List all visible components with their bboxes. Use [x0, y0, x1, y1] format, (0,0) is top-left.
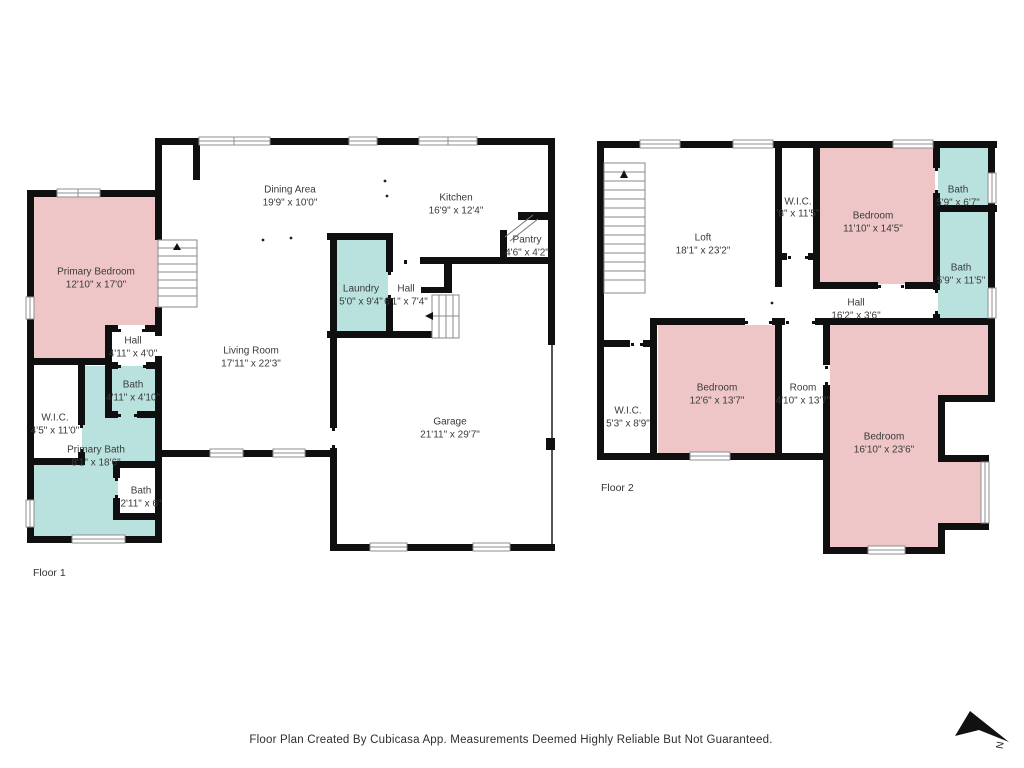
room-name: Bedroom: [853, 211, 894, 222]
room-name: Kitchen: [439, 193, 472, 204]
room-name: Pantry: [513, 235, 542, 246]
north-label: N: [993, 740, 1005, 749]
room-name: Bath: [123, 380, 144, 391]
room-dims: 4'10" x 13'7": [776, 396, 831, 407]
bedroom3-fill: [830, 325, 988, 547]
room-name: Room: [790, 383, 817, 394]
room-dims: 16'2" x 3'6": [831, 311, 881, 322]
disclaimer-text: Floor Plan Created By Cubicasa App. Meas…: [249, 734, 772, 746]
room-dims: 5'3" x 8'9": [606, 419, 650, 430]
floor2: Loft 18'1" x 23'2" W.I.C. '8" x 11'5" Be…: [597, 140, 997, 554]
room-dims: 12'6" x 13'7": [690, 396, 745, 407]
room-dims: 5'9" x 11'5": [937, 276, 986, 287]
north-arrow-icon: N: [955, 711, 1009, 750]
room-dims: 5'9" x 6'7": [936, 198, 980, 209]
room-name: Loft: [695, 233, 712, 244]
room-name: Dining Area: [264, 185, 316, 196]
room-dims: '8" x 11'5": [777, 209, 820, 220]
room-dims: 16'9" x 12'4": [429, 206, 484, 217]
room-dims: 16'10" x 23'6": [854, 445, 915, 456]
room-dims: 2'11" x 6": [120, 499, 162, 510]
room-dims: 19'9" x 10'0": [263, 198, 318, 209]
room-name: Hall: [397, 284, 414, 295]
stairs-down-arrow-icon: [425, 312, 433, 320]
floor1: Primary Bedroom 12'10" x 17'0" Dining Ar…: [26, 137, 555, 579]
room-name: Bath: [948, 185, 969, 196]
room-name: Laundry: [343, 284, 379, 295]
room-name: Bath: [131, 486, 152, 497]
room-dims: 4'5" x 11'0": [31, 426, 80, 437]
room-dims: 5'0" x 9'4": [339, 297, 383, 308]
room-name: Garage: [433, 417, 467, 428]
stairs-icon: [158, 240, 197, 307]
room-dims: 4'11" x 4'10": [106, 393, 161, 404]
garage-door-line: [551, 450, 553, 544]
room-name: Primary Bedroom: [57, 267, 135, 278]
room-name: Hall: [124, 336, 141, 347]
room-dims: 12'10" x 17'0": [66, 280, 127, 291]
floor-plan-canvas: Primary Bedroom 12'10" x 17'0" Dining Ar…: [0, 0, 1024, 768]
room-dims: 4'11" x 4'0": [109, 349, 158, 360]
room-dims: 6'1" x 7'4": [384, 297, 428, 308]
room-dims: 8'1" x 18'6": [71, 458, 121, 469]
room-name: W.I.C.: [41, 413, 68, 424]
room-dims: 17'11" x 22'3": [221, 359, 281, 370]
room-dims: 11'10" x 14'5": [843, 224, 903, 235]
room-dims: 18'1" x 23'2": [676, 246, 731, 257]
room-name: Bath: [951, 263, 972, 274]
room-name: Bedroom: [864, 432, 905, 443]
room-dims: 4'6" x 4'2": [505, 248, 549, 259]
room-name: Bedroom: [697, 383, 738, 394]
room-name: Hall: [847, 298, 864, 309]
room-name: W.I.C.: [614, 406, 641, 417]
room-name: Living Room: [223, 346, 279, 357]
room-name: W.I.C.: [784, 197, 811, 208]
floor1-caption: Floor 1: [33, 567, 66, 579]
garage-door-line: [551, 345, 553, 438]
floor2-caption: Floor 2: [601, 482, 634, 494]
stairs-icon: [604, 163, 645, 293]
room-name: Primary Bath: [67, 445, 125, 456]
room-dims: 21'11" x 29'7": [420, 430, 480, 441]
